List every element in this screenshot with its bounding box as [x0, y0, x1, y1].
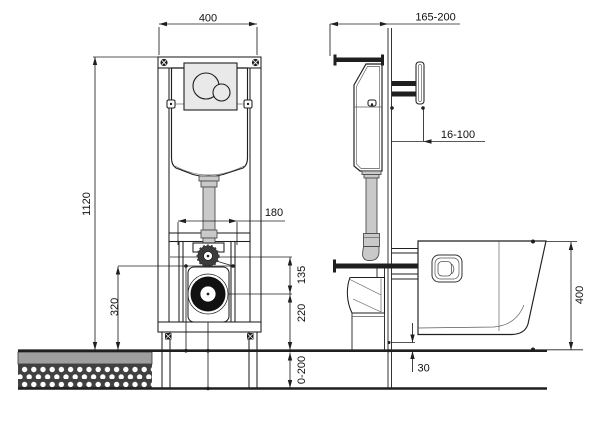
dimension-drain-height: 220: [288, 295, 308, 351]
dim-label-frame-depth: 165-200: [415, 12, 455, 24]
installation-drawing: 400 1120 180 320 135: [0, 0, 600, 424]
dimension-wall-offset: 16-100: [390, 106, 485, 144]
front-view: [118, 57, 292, 389]
dimension-bowl-height: 400: [531, 240, 586, 352]
wall-bracket: [392, 62, 424, 104]
dimension-pipe-to-drain: 135: [288, 258, 308, 351]
cistern-side: [354, 64, 382, 171]
toilet-bowl: [418, 241, 546, 335]
flush-pipe-side: [362, 171, 381, 261]
dimensions: 400 1120 180 320 135: [81, 12, 586, 391]
dim-label-wall-offset: 16-100: [441, 129, 475, 141]
dim-label-bowl-height: 400: [574, 286, 586, 304]
wall: [388, 28, 392, 389]
dim-label-floor-adjust: 0-200: [296, 356, 308, 384]
drain-outlet: [188, 267, 229, 322]
supply-connector: [193, 243, 224, 267]
flush-elbow: [363, 247, 380, 261]
bowl-inspection-detail: [432, 255, 462, 282]
dim-label-pipe-to-drain: 135: [296, 266, 308, 284]
dim-label-frame-height: 1120: [81, 192, 93, 216]
foot-left: [162, 332, 170, 389]
dimension-floor-adjust: 0-200: [288, 353, 308, 389]
foot-right: [249, 332, 257, 389]
drain-elbow: [347, 268, 384, 350]
dimension-inlet-height: 320: [109, 267, 121, 351]
dimension-frame-width: 400: [159, 13, 257, 56]
dim-label-frame-width: 400: [199, 13, 217, 25]
dimension-frame-depth: 165-200: [330, 12, 460, 57]
dim-label-bowl-floor-gap: 30: [418, 363, 430, 375]
dim-label-bolt-spacing: 180: [265, 207, 283, 219]
dim-label-drain-height: 220: [296, 304, 308, 322]
fixing-rod-bottom: [333, 260, 418, 273]
side-view: [333, 28, 546, 389]
drawing-canvas: 400 1120 180 320 135: [0, 0, 600, 424]
floor-finish-layer: [18, 352, 152, 364]
flush-button-small: [213, 84, 230, 101]
dimension-bowl-floor-gap: 30: [388, 323, 430, 375]
flush-pipe-front: [199, 176, 219, 247]
dim-label-inlet-height: 320: [109, 298, 121, 316]
flush-plate: [184, 63, 237, 110]
